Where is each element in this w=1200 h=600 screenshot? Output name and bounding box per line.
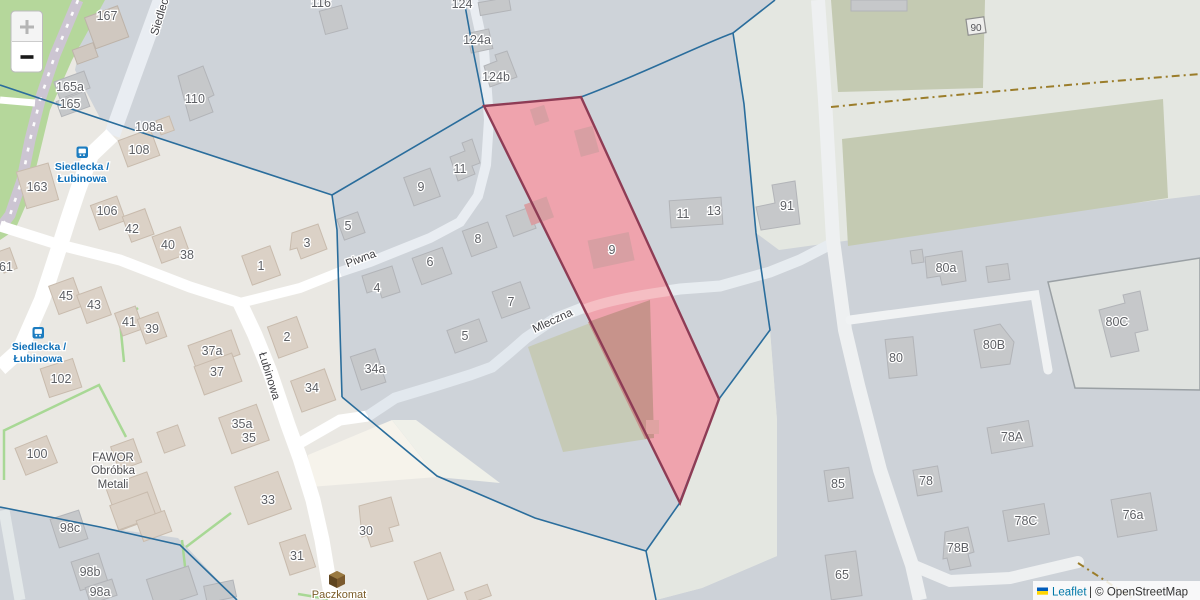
svg-text:7: 7 <box>508 295 515 309</box>
svg-text:85: 85 <box>831 477 845 491</box>
svg-text:100: 100 <box>27 447 48 461</box>
svg-text:124a: 124a <box>463 33 491 47</box>
svg-text:108: 108 <box>129 143 150 157</box>
svg-text:Obróbka: Obróbka <box>91 465 136 477</box>
svg-text:35: 35 <box>242 431 256 445</box>
svg-text:78A: 78A <box>1001 430 1024 444</box>
svg-text:80B: 80B <box>983 338 1005 352</box>
svg-text:45: 45 <box>59 289 73 303</box>
svg-text:98a: 98a <box>90 585 111 599</box>
svg-text:| © OpenStreetMap: | © OpenStreetMap <box>1089 587 1188 599</box>
svg-text:8: 8 <box>475 232 482 246</box>
svg-text:102: 102 <box>51 372 72 386</box>
svg-text:110: 110 <box>185 92 205 106</box>
svg-text:6: 6 <box>427 255 434 269</box>
svg-text:37a: 37a <box>202 344 223 358</box>
svg-text:2: 2 <box>284 330 291 344</box>
svg-text:116: 116 <box>311 0 331 10</box>
svg-text:9: 9 <box>418 180 425 194</box>
svg-text:124b: 124b <box>482 70 510 84</box>
svg-text:5: 5 <box>462 329 469 343</box>
svg-text:Leaflet: Leaflet <box>1052 587 1087 599</box>
svg-text:163: 163 <box>27 180 48 194</box>
svg-text:34a: 34a <box>365 362 386 376</box>
svg-text:Siedlecka /: Siedlecka / <box>55 161 109 173</box>
svg-text:34: 34 <box>305 381 319 395</box>
svg-text:108a: 108a <box>135 120 163 134</box>
svg-text:Łubinowa: Łubinowa <box>58 173 107 185</box>
svg-text:65: 65 <box>835 568 849 582</box>
svg-text:Łubinowa: Łubinowa <box>14 353 63 365</box>
svg-text:91: 91 <box>780 199 794 213</box>
svg-text:11: 11 <box>677 207 690 221</box>
svg-text:40: 40 <box>161 238 175 252</box>
svg-text:38: 38 <box>180 248 194 262</box>
svg-text:78: 78 <box>919 474 933 488</box>
svg-text:13: 13 <box>707 204 721 218</box>
svg-text:11: 11 <box>454 162 467 176</box>
svg-text:33: 33 <box>261 493 275 507</box>
svg-text:4: 4 <box>374 281 381 295</box>
svg-text:37: 37 <box>210 365 224 379</box>
svg-text:Siedlecka /: Siedlecka / <box>12 341 66 353</box>
svg-text:Paczkomat: Paczkomat <box>312 589 366 600</box>
svg-text:98b: 98b <box>80 565 101 579</box>
svg-text:106: 106 <box>97 204 118 218</box>
svg-text:165: 165 <box>60 97 81 111</box>
svg-text:Metali: Metali <box>98 479 129 491</box>
svg-text:61: 61 <box>0 260 13 274</box>
svg-text:3: 3 <box>304 236 311 250</box>
svg-text:78B: 78B <box>947 541 969 555</box>
svg-text:31: 31 <box>290 549 304 563</box>
svg-text:35a: 35a <box>232 417 253 431</box>
svg-text:5: 5 <box>345 219 352 233</box>
svg-text:41: 41 <box>122 315 136 329</box>
svg-text:80C: 80C <box>1106 315 1129 329</box>
svg-text:76a: 76a <box>1123 508 1144 522</box>
svg-text:124: 124 <box>452 0 473 11</box>
svg-text:80a: 80a <box>936 261 957 275</box>
svg-text:43: 43 <box>87 298 101 312</box>
svg-text:9: 9 <box>609 243 616 257</box>
svg-text:90: 90 <box>970 23 982 34</box>
svg-text:39: 39 <box>145 322 159 336</box>
svg-text:1: 1 <box>258 259 265 273</box>
svg-text:FAWOR: FAWOR <box>92 452 134 464</box>
svg-text:165a: 165a <box>56 80 84 94</box>
svg-text:80: 80 <box>889 351 903 365</box>
svg-text:78C: 78C <box>1015 514 1038 528</box>
svg-text:42: 42 <box>125 222 139 236</box>
svg-text:167: 167 <box>97 9 118 23</box>
svg-text:30: 30 <box>359 524 373 538</box>
svg-text:98c: 98c <box>60 521 80 535</box>
